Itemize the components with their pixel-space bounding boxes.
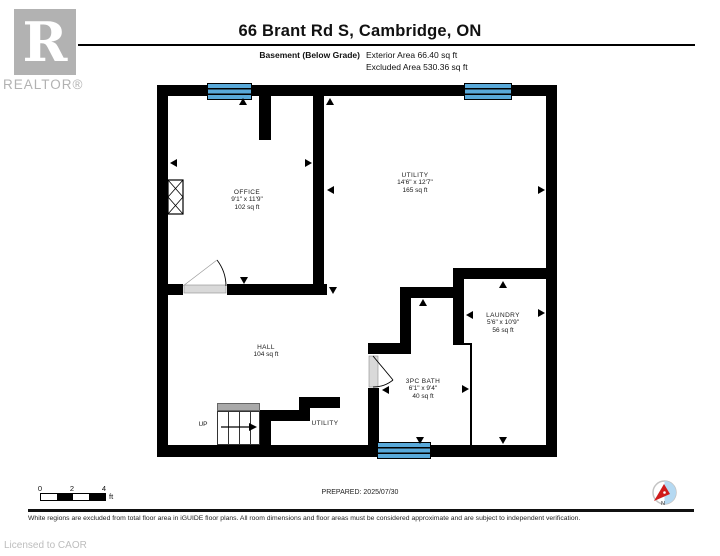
page-title: 66 Brant Rd S, Cambridge, ON (0, 22, 720, 41)
dimension-arrow-icon (538, 186, 545, 194)
wall (400, 287, 411, 347)
floor-plan-page: R REALTOR® 66 Brant Rd S, Cambridge, ON … (0, 0, 720, 556)
plan-overlay (0, 0, 720, 556)
dimension-arrow-icon (305, 159, 312, 167)
wall (453, 268, 546, 279)
wall (299, 397, 340, 408)
dimension-arrow-icon (499, 437, 507, 444)
dimension-arrow-icon (326, 98, 334, 105)
room-label-hall: HALL 104 sq ft (216, 344, 316, 359)
realtor-brand-text: REALTOR® (3, 77, 103, 92)
window-icon (464, 83, 512, 100)
stair-tread-line (239, 411, 240, 445)
scale-bar (40, 493, 106, 501)
footer-divider (28, 509, 694, 512)
room-label-laundry: LAUNDRY 5'6" x 10'9" 56 sq ft (463, 312, 543, 334)
disclaimer-text: White regions are excluded from total fl… (28, 515, 712, 522)
stairs-landing (217, 403, 260, 411)
window-icon (377, 442, 431, 459)
stairs-up-label: UP (193, 421, 213, 428)
scale-unit: ft (109, 492, 113, 501)
room-label-office: OFFICE 9'1" x 11'9" 102 sq ft (197, 189, 297, 211)
dimension-arrow-icon (327, 186, 334, 194)
wall (546, 85, 557, 457)
window-x-symbol (168, 180, 183, 214)
compass-north-label: N (661, 501, 665, 507)
stair-tread-line (228, 411, 229, 445)
wall (368, 388, 379, 445)
dimension-arrow-icon (499, 281, 507, 288)
dimension-arrow-icon (462, 385, 469, 393)
wall (227, 284, 327, 295)
scale-tick-0: 0 (35, 484, 45, 493)
dimension-arrow-icon (419, 299, 427, 306)
wall (368, 343, 411, 354)
wall (157, 85, 168, 457)
dimension-arrow-icon (416, 437, 424, 444)
dimension-arrow-icon (239, 98, 247, 105)
stair-tread-line (250, 411, 251, 445)
exterior-area-text: Exterior Area 66.40 sq ft (366, 50, 457, 60)
license-text: Licensed to CAOR (4, 540, 87, 551)
dimension-arrow-icon (170, 159, 177, 167)
wall (313, 96, 324, 295)
dimension-arrow-icon (240, 277, 248, 284)
wall (157, 445, 557, 457)
dimension-arrow-icon (329, 287, 337, 294)
header-divider (78, 44, 695, 46)
room-label-utility-closet: UTILITY (300, 420, 350, 427)
excluded-area-text: Excluded Area 530.36 sq ft (366, 62, 468, 72)
wall (259, 96, 271, 140)
floor-label: Basement (Below Grade) (180, 50, 360, 60)
prepared-date: PREPARED: 2025/07/30 (280, 489, 440, 496)
room-label-utility: UTILITY 14'6" x 12'7" 165 sq ft (365, 172, 465, 194)
room-boundary-line (470, 343, 472, 445)
realtor-logo-icon: R (14, 9, 76, 75)
realtor-logo-letter: R (23, 11, 68, 73)
office-door (183, 260, 226, 293)
room-label-bath: 3PC BATH 6'1" x 9'4" 40 sq ft (383, 378, 463, 400)
wall (157, 284, 183, 295)
scale-tick-2: 2 (67, 484, 77, 493)
scale-tick-4: 4 (99, 484, 109, 493)
